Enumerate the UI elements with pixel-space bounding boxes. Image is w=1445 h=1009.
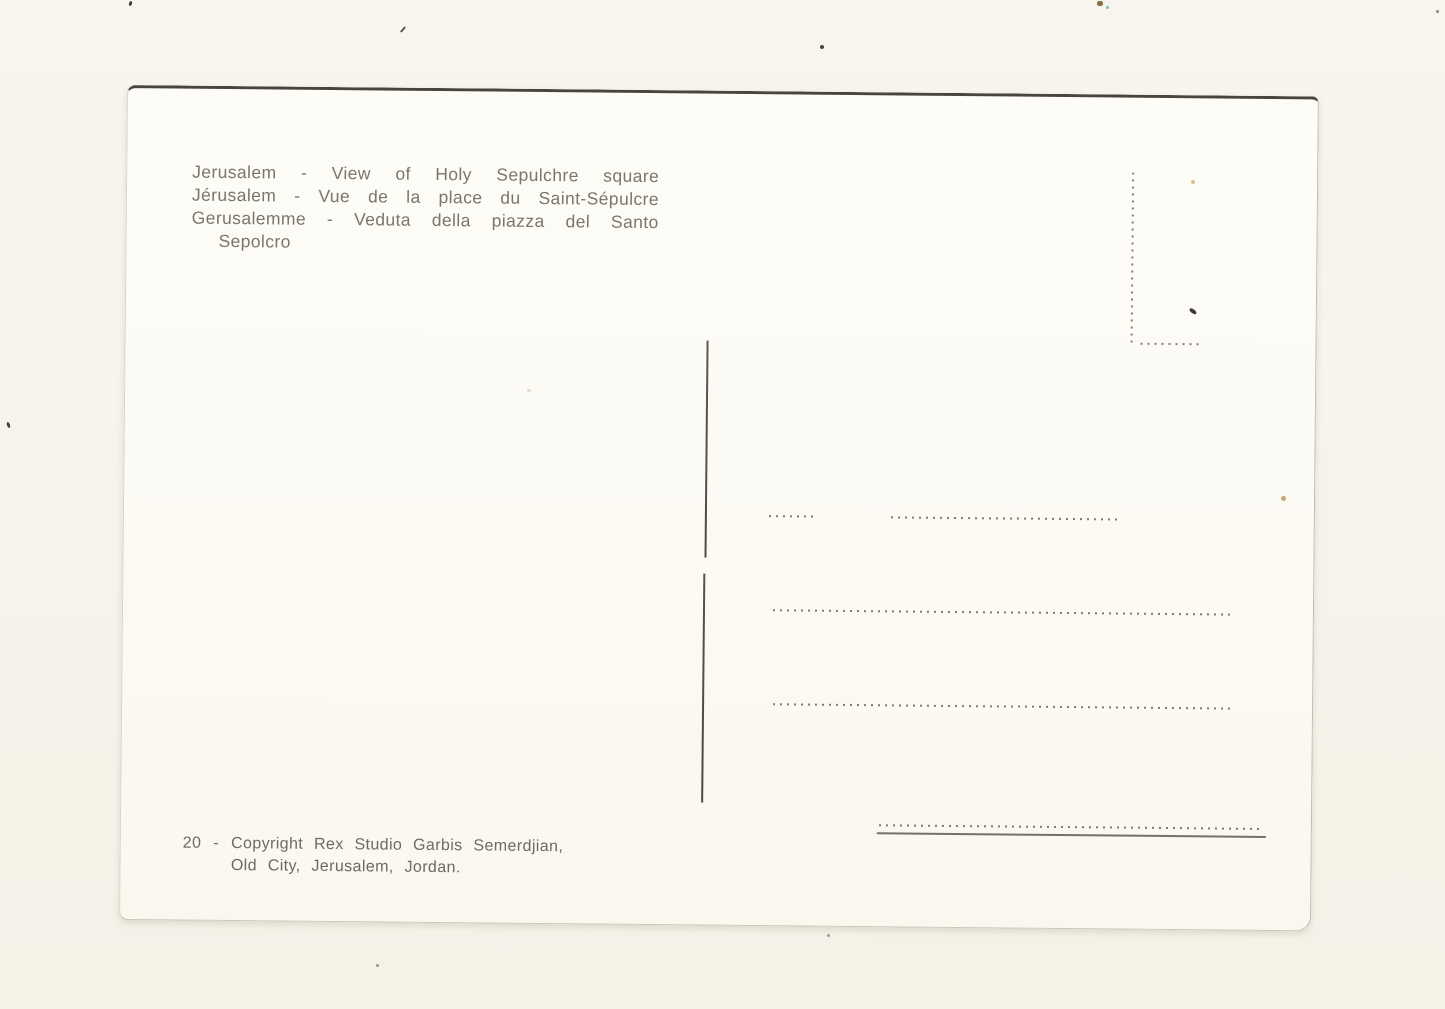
dust-speck [1097,1,1103,6]
address-line-1-long [891,516,1120,520]
stamp-box-bottom-edge [1141,343,1199,346]
dust-speck [827,934,830,937]
address-line-4-dotted [879,824,1264,830]
credit-lines: Copyright Rex Studio Garbis Semerdjian, … [231,833,564,880]
dust-speck [1436,10,1439,13]
address-line-1-short [769,515,817,517]
credit-block: 20 - Copyright Rex Studio Garbis Semerdj… [182,833,563,881]
credit-separator: - [213,833,219,855]
postcard-back: Jerusalem - View of Holy Sepulchre squar… [119,85,1319,931]
address-line-3 [773,703,1234,709]
credit-line-2: Old City, Jerusalem, Jordan. [231,855,563,880]
card-number: 20 [183,833,202,855]
caption-line-italian-continued: Sepolcro [191,230,658,257]
paper-fleck [1281,496,1286,501]
caption-block: Jerusalem - View of Holy Sepulchre squar… [191,161,659,257]
dust-speck [1106,6,1109,9]
dust-speck [6,422,11,429]
credit-line-1: Copyright Rex Studio Garbis Semerdjian, [231,833,563,858]
dust-speck [820,45,824,49]
dust-speck [400,26,406,33]
divider-line-upper [704,341,708,558]
paper-fleck [527,389,531,392]
address-line-4-solid [877,832,1266,838]
paper-fleck [1191,180,1195,184]
dust-speck [128,1,132,7]
stamp-box-left-edge [1131,173,1135,343]
divider-line-lower [701,574,705,803]
dust-speck [376,964,379,967]
address-line-2 [773,609,1233,615]
ink-fleck [1189,307,1198,315]
scanned-postcard-background: Jerusalem - View of Holy Sepulchre squar… [0,0,1445,1009]
